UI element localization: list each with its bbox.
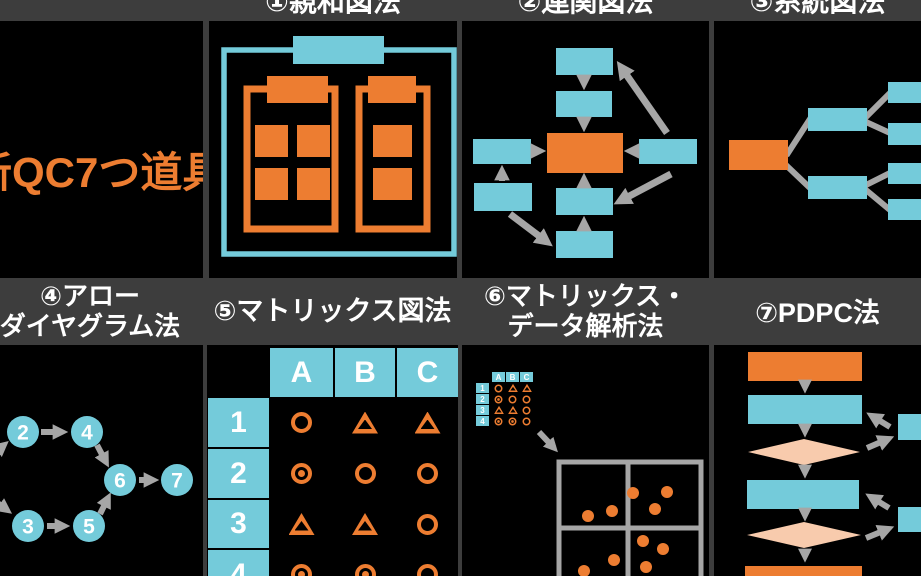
scatter-dot-4: [649, 503, 661, 515]
relation-box-lower: [556, 188, 613, 215]
symbol-4c: [417, 564, 438, 576]
clipboard-left-note-1: [255, 125, 288, 157]
infographic-canvas: ①親和図法 ②連関図法 ③系統図法 新QC7つ道具: [0, 0, 921, 576]
matrix-row-header-1: 1: [208, 398, 269, 447]
symbol-3c: [417, 514, 438, 535]
pdpc-decision-diamond-1: [748, 439, 860, 465]
node-4-label: 4: [81, 422, 93, 445]
symbol-4a: [291, 564, 312, 576]
matrix-row-header-4: 4: [208, 550, 269, 576]
symbol-3a: [289, 513, 315, 535]
node-6-label: 6: [114, 470, 126, 493]
panel-affinity: [209, 21, 457, 278]
header-matrix-data-line2: データ解析法: [462, 311, 709, 341]
clipboard-left-note-2: [297, 125, 330, 157]
scatter-dot-3: [627, 487, 639, 499]
header-relation: ②連関図法: [462, 0, 709, 17]
pdpc-side-arrow-1-out: [867, 439, 888, 448]
header-arrow-diagram: ④アロー ダイヤグラム法: [0, 281, 210, 341]
matrix-cell-3b: [335, 500, 395, 548]
symbol-1b: [352, 412, 378, 434]
scatter-dot-6: [637, 535, 649, 547]
tree-link-b2-up: [866, 173, 890, 185]
matrix-col-header-a: A: [270, 348, 333, 397]
node-6: 6: [104, 464, 136, 496]
node-7: 7: [161, 464, 193, 496]
node-4: 4: [71, 416, 103, 448]
symbol-2b: [355, 463, 376, 484]
pdpc-side-arrow-1-back: [872, 416, 890, 427]
symbol-1c: [415, 412, 441, 434]
panel-tree: [714, 21, 921, 278]
main-title: 新QC7つ道具: [0, 139, 203, 200]
relation-arrow-diag-right: [620, 174, 671, 201]
matrix-row-header-2: 2: [208, 449, 269, 498]
relation-box-right: [639, 139, 697, 164]
tree-link-b2-down: [866, 190, 890, 210]
symbol-2a: [291, 463, 312, 484]
clipboard-right-note-2: [373, 168, 412, 200]
scatter-dot-10: [578, 565, 590, 576]
panel-title: 新QC7つ道具: [0, 21, 203, 278]
scatter-dot-2: [606, 505, 618, 517]
tree-link-b1-down: [866, 122, 890, 133]
matrix-cell-3a: [270, 500, 333, 548]
pdpc-side-arrow-2-out: [866, 529, 888, 538]
tree-diagram: [714, 21, 921, 278]
node-2: 2: [7, 416, 39, 448]
relation-box-center: [547, 133, 623, 173]
matrix-cell-1b: [335, 398, 395, 447]
tree-leaf-box-2: [888, 123, 921, 145]
pdpc-side-box-2: [898, 507, 921, 532]
header-tree: ③系統図法: [714, 0, 921, 17]
relation-box-top: [556, 48, 613, 75]
matrix-cell-1c: [397, 398, 458, 447]
relation-arrow-diag-left: [510, 214, 547, 242]
arrow-in-3: [0, 499, 7, 510]
arrow-diagram: 2 4 6 7 3 5: [0, 345, 203, 576]
symbol-2c: [417, 463, 438, 484]
scatter-dot-1: [582, 510, 594, 522]
relation-diagram: [462, 21, 709, 278]
tree-leaf-box-3: [888, 163, 921, 184]
scatter-dot-8: [640, 561, 652, 573]
pdpc-decision-diamond-2: [747, 522, 861, 548]
pdpc-end-box: [745, 566, 862, 576]
header-pdpc: ⑦PDPC法: [714, 299, 921, 328]
matrix-cell-2c: [397, 449, 458, 498]
matrix-cell-1a: [270, 398, 333, 447]
clipboard-left-note-3: [255, 168, 288, 200]
matrix-row-header-3: 3: [208, 500, 269, 548]
node-7-label: 7: [171, 470, 183, 493]
pdpc-step-box-2: [747, 480, 859, 509]
symbol-1a: [291, 412, 312, 433]
relation-box-left: [473, 139, 531, 164]
symbol-3b: [352, 513, 378, 535]
panel-pdpc: [714, 345, 921, 576]
tree-link-b1-up: [866, 93, 890, 117]
node-3: 3: [12, 510, 44, 542]
matrix-cell-2b: [335, 449, 395, 498]
panel-relation: [462, 21, 709, 278]
node-3-label: 3: [22, 516, 34, 539]
relation-box-upper: [556, 91, 612, 117]
panel-matrix-data: A B C 1 2 3 4: [462, 345, 709, 576]
matrix-cell-4b: [335, 550, 395, 576]
pdpc-start-box: [748, 352, 862, 381]
tree-link-root-down: [788, 167, 810, 188]
pdpc-flowchart: [714, 345, 921, 576]
arrow-in-2: [0, 445, 4, 455]
pdpc-side-arrow-2-back: [871, 497, 889, 508]
header-arrow-line1: ④アロー: [0, 281, 210, 311]
matrix-col-header-c: C: [397, 348, 458, 397]
table-to-chart-arrow: [539, 432, 554, 448]
clipboard-left-body: [247, 89, 335, 229]
matrix-cell-4c: [397, 550, 458, 576]
matrix-col-header-b: B: [335, 348, 395, 397]
arrow-4-6: [97, 445, 106, 462]
header-arrow-line2: ダイヤグラム法: [0, 311, 210, 341]
header-affinity: ①親和図法: [209, 0, 457, 17]
matrix-cell-4a: [270, 550, 333, 576]
matrix-cell-3c: [397, 500, 458, 548]
panel-arrow-diagram: 2 4 6 7 3 5: [0, 345, 203, 576]
node-5: 5: [73, 510, 105, 542]
header-matrix-data-line1: ⑥マトリックス・: [462, 281, 709, 311]
clipboard-right-body: [359, 89, 427, 229]
tree-link-root-up: [788, 119, 810, 153]
scatter-dot-9: [608, 554, 620, 566]
relation-arrow-diag-topright: [621, 67, 667, 133]
affinity-icon: [209, 21, 457, 278]
header-matrix: ⑤マトリックス図法: [207, 297, 458, 326]
tree-root-box: [729, 140, 788, 170]
clipboard-left-note-4: [297, 168, 330, 200]
relation-box-left-lower: [474, 183, 532, 211]
node-5-label: 5: [83, 516, 95, 539]
symbol-4b: [355, 564, 376, 576]
header-matrix-data: ⑥マトリックス・ データ解析法: [462, 281, 709, 341]
panel-matrix: A B C 1 2 3 4: [207, 345, 458, 576]
matrix-cell-2a: [270, 449, 333, 498]
relation-box-bottom: [556, 231, 613, 258]
pdpc-side-box-1: [898, 414, 921, 440]
tree-leaf-box-4: [888, 199, 921, 220]
pdpc-step-box-1: [748, 395, 862, 424]
scatter-dot-5: [661, 486, 673, 498]
tree-leaf-box-1: [888, 82, 921, 103]
tree-branch-box-2: [808, 176, 867, 199]
matrix-data-chart: [462, 345, 709, 576]
tree-branch-box-1: [808, 108, 867, 131]
node-2-label: 2: [17, 422, 29, 445]
clipboard-right-note-1: [373, 125, 412, 157]
arrow-5-6: [100, 498, 108, 514]
scatter-dot-7: [657, 543, 669, 555]
